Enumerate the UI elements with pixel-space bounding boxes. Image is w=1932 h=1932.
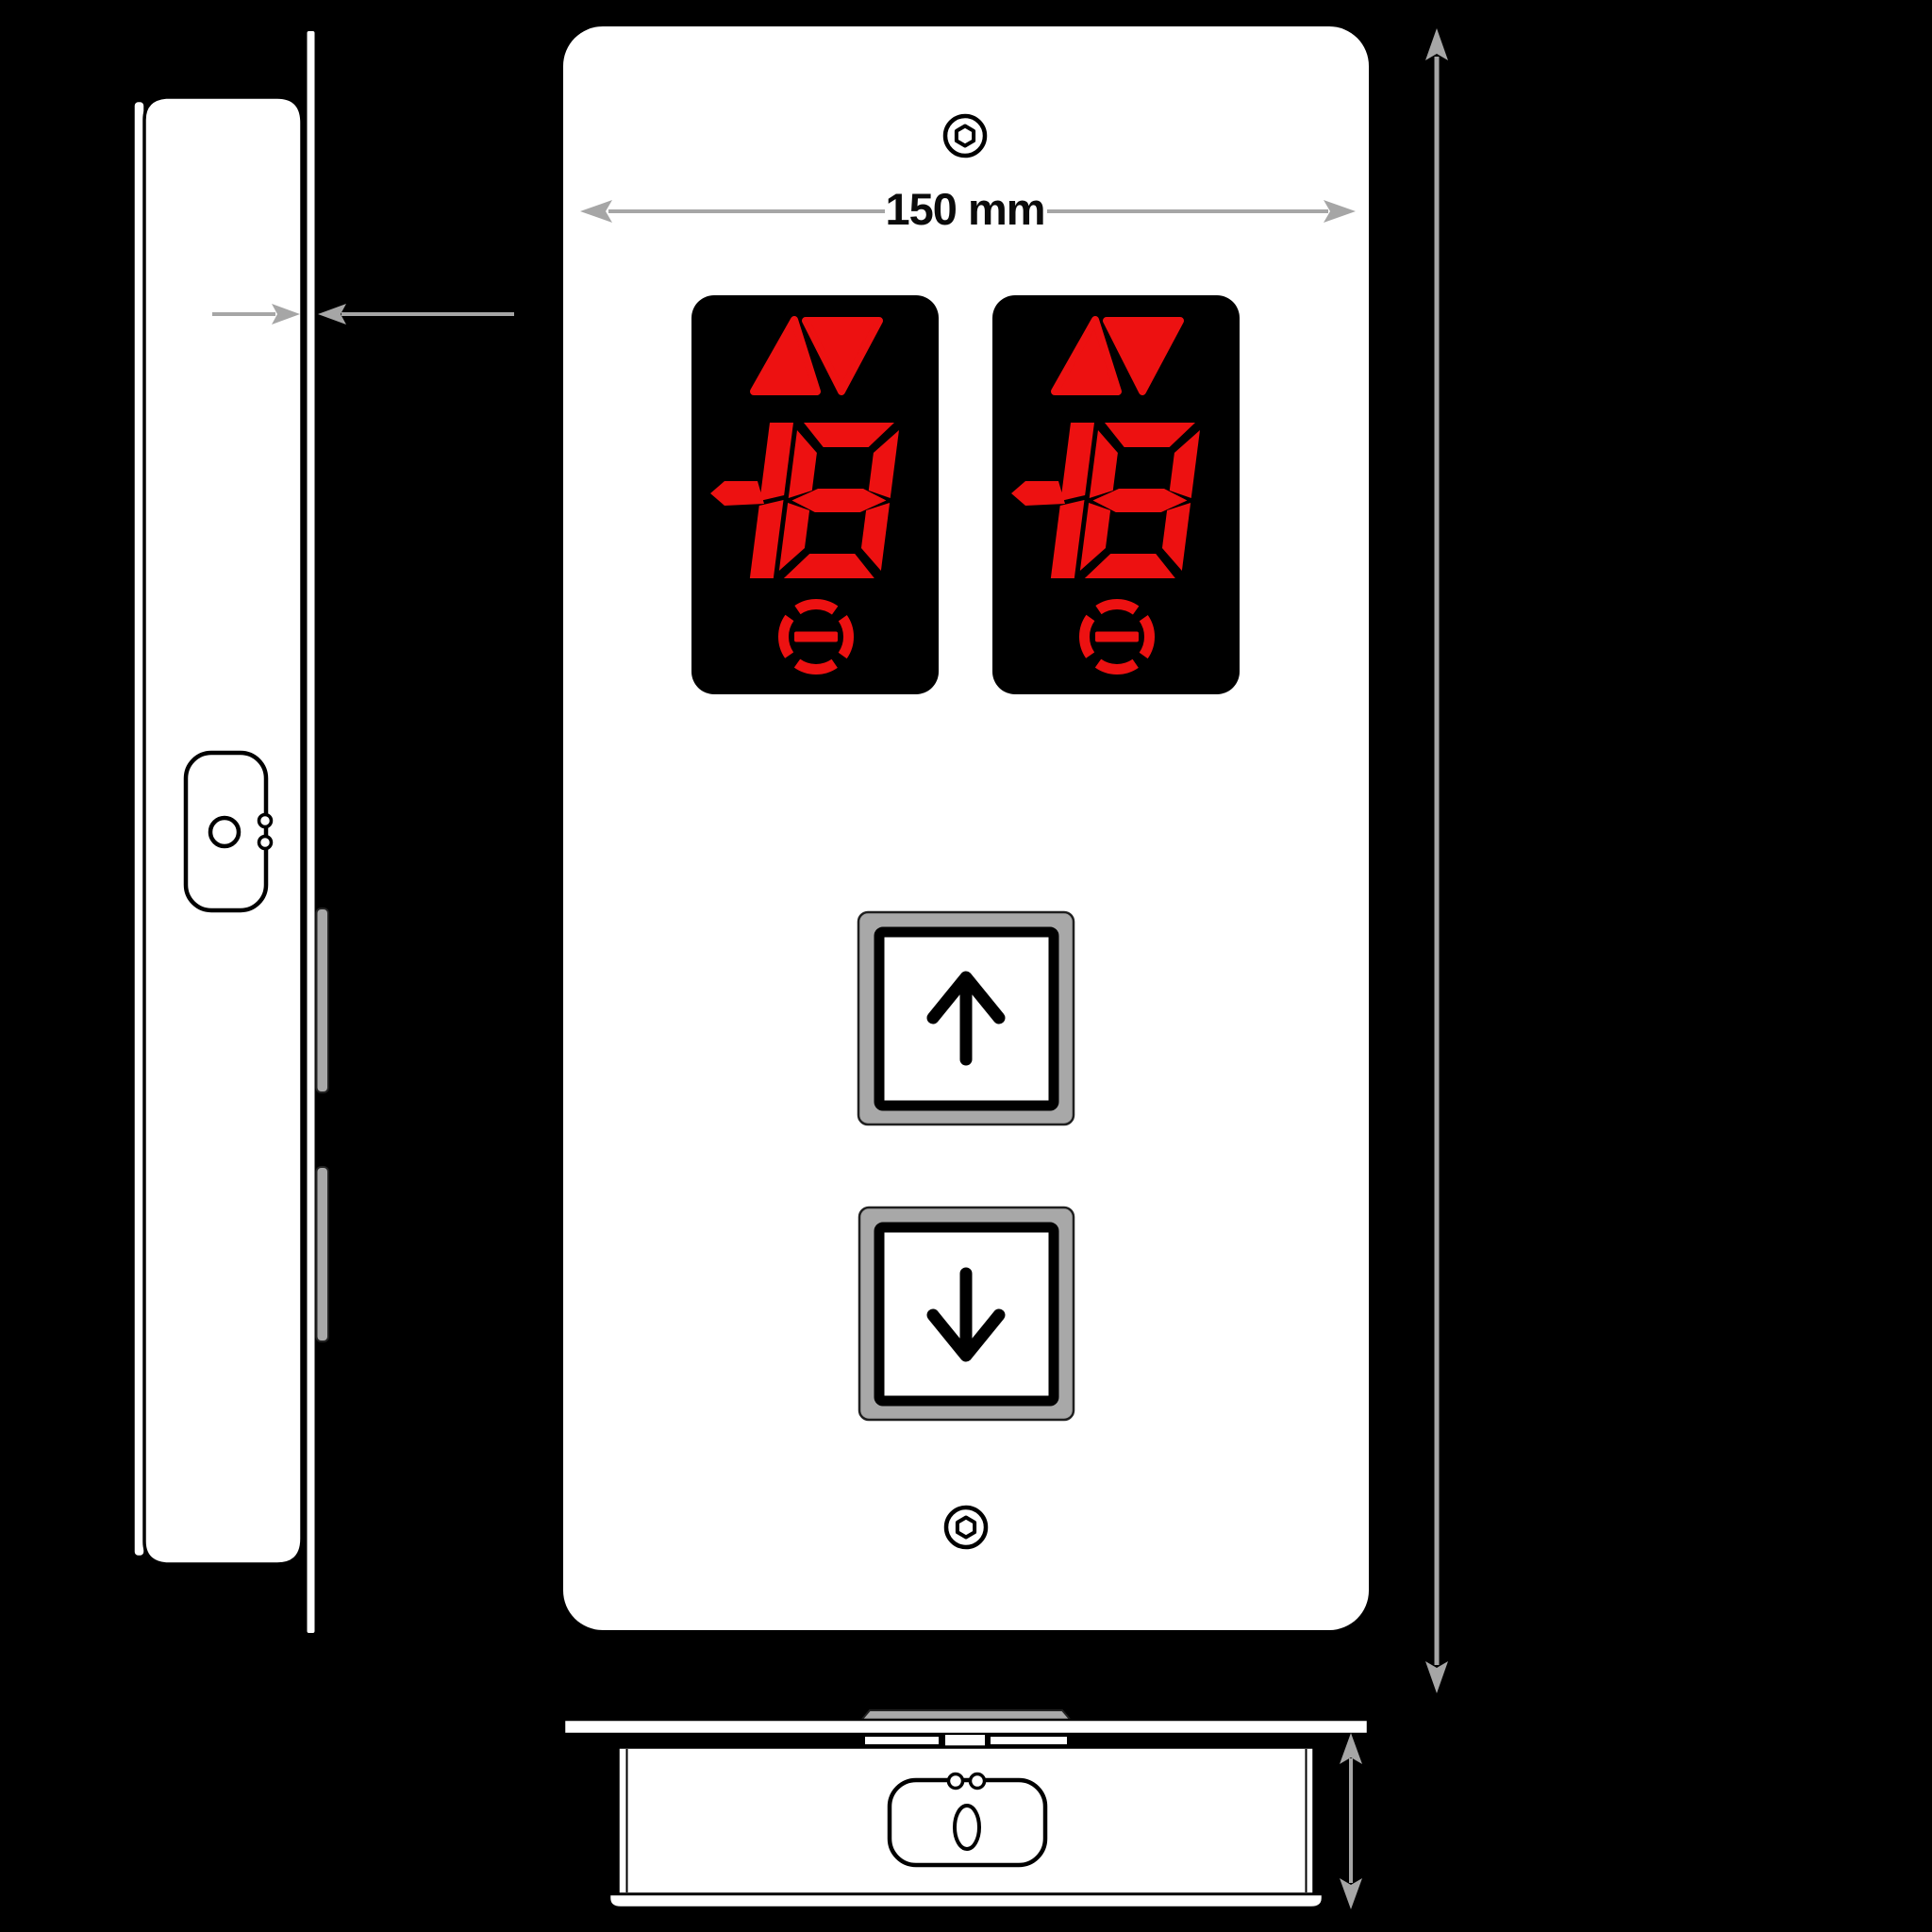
bottom-pin-hole-right xyxy=(971,1774,985,1789)
side-pin-hole-top xyxy=(259,815,272,827)
up-button[interactable] xyxy=(858,912,1074,1124)
width-dimension-label: 150 mm xyxy=(885,184,1044,234)
bottom-faceplate-edge xyxy=(564,1720,1368,1734)
bottom-latch-left xyxy=(864,1736,940,1745)
drawing-canvas: 150 mm xyxy=(0,0,1932,1932)
bottom-latch-center xyxy=(944,1734,986,1747)
bottom-pin-hole-left xyxy=(949,1774,963,1789)
bottom-cover-lip xyxy=(609,1894,1323,1907)
front-view: 150 mm xyxy=(563,26,1369,1630)
floor-display xyxy=(691,295,939,694)
screw-bottom xyxy=(946,1507,986,1547)
side-faceplate-edge xyxy=(307,30,316,1634)
side-pin-hole-bottom xyxy=(259,837,272,849)
side-cutout-hole xyxy=(210,818,239,846)
bottom-latch-right xyxy=(990,1736,1068,1745)
bottom-cutout-hole xyxy=(955,1806,979,1849)
down-button[interactable] xyxy=(859,1207,1074,1420)
floor-display xyxy=(992,295,1240,694)
screw-top xyxy=(945,116,985,156)
side-clip-bottom xyxy=(317,1167,329,1341)
side-clip-top xyxy=(317,908,329,1092)
